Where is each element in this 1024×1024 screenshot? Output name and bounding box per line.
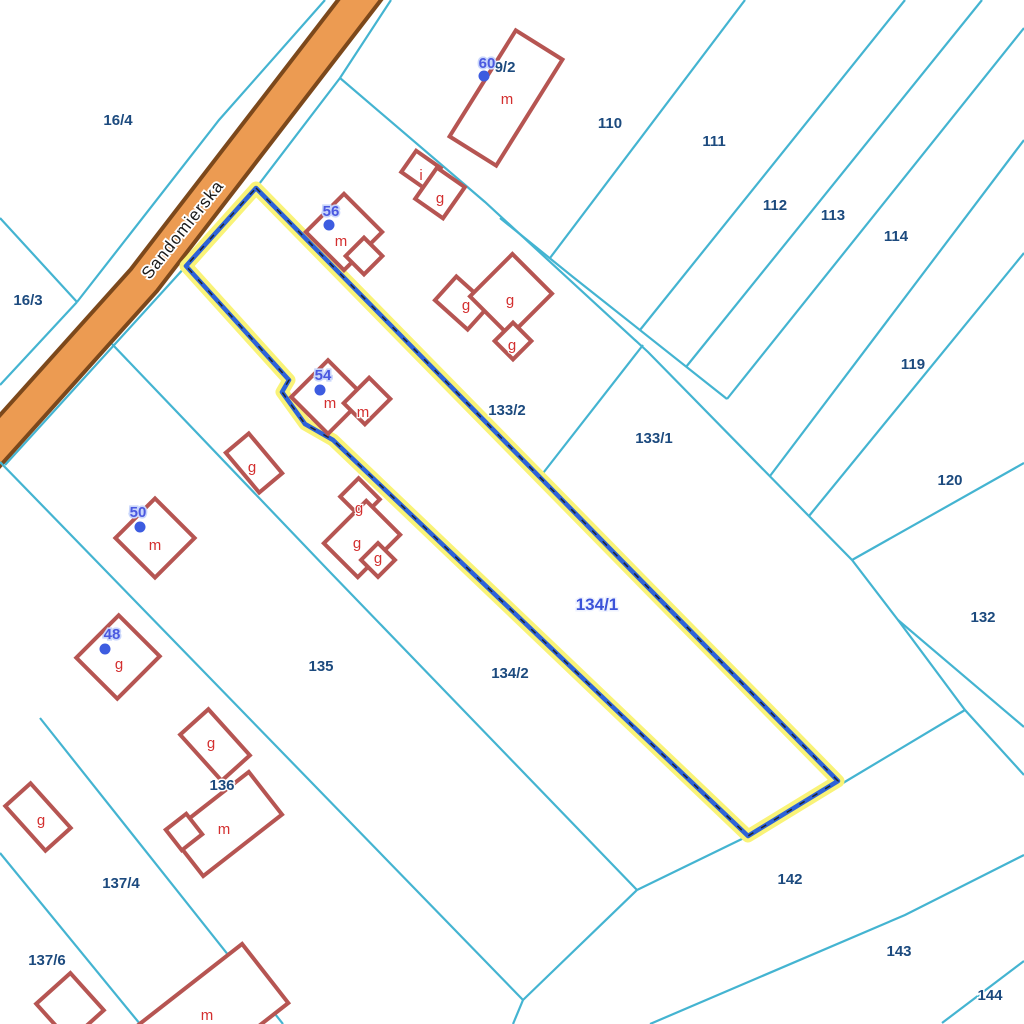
- building-type-label: g: [207, 735, 215, 752]
- building-type-label: i: [419, 167, 422, 184]
- parcel-label-113[interactable]: 113: [821, 207, 845, 224]
- building-type-label: g: [115, 656, 123, 673]
- building-type-label: g: [506, 292, 514, 309]
- building-type-label: m: [501, 91, 514, 108]
- parcel-label-119[interactable]: 119: [901, 356, 925, 373]
- building-type-label: g: [436, 190, 444, 207]
- parcel-label-133-2[interactable]: 133/2: [488, 402, 526, 419]
- building-type-label: m: [335, 233, 348, 250]
- building-type-label: g: [374, 550, 382, 567]
- parcel-label-111[interactable]: 111: [702, 133, 725, 150]
- building-type-label: m: [324, 395, 337, 412]
- address-point-dot: [135, 522, 146, 533]
- parcel-label-134-2[interactable]: 134/2: [491, 665, 529, 682]
- building-type-label: m: [201, 1007, 214, 1024]
- parcel-label-114[interactable]: 114: [884, 228, 909, 245]
- address-number-label-60[interactable]: 60: [479, 55, 496, 72]
- address-number-label-56[interactable]: 56: [323, 203, 340, 220]
- parcel-label-143[interactable]: 143: [886, 943, 911, 960]
- parcel-boundary-line: [770, 140, 1024, 476]
- building-type-label: m: [357, 404, 370, 421]
- parcel-label-137-6[interactable]: 137/6: [28, 952, 66, 969]
- building-type-label: g: [462, 297, 470, 314]
- parcel-boundary-line: [540, 345, 643, 477]
- parcel-label-144[interactable]: 144: [977, 987, 1003, 1004]
- address-point-dot: [479, 71, 490, 82]
- address-number-label-48[interactable]: 48: [104, 626, 121, 643]
- parcel-label-135[interactable]: 135: [308, 658, 333, 675]
- map-canvas[interactable]: migmgggmmggggmggmgm16/416/39/21101111121…: [0, 0, 1024, 1024]
- building-type-label: g: [37, 812, 45, 829]
- parcel-label-110[interactable]: 110: [598, 115, 622, 132]
- parcel-boundary-line: [523, 890, 637, 1000]
- building-type-label: m: [149, 537, 162, 554]
- parcel-boundary-line: [686, 0, 982, 367]
- building-type-label: g: [353, 535, 361, 552]
- parcel-boundary-line: [513, 1000, 523, 1024]
- parcel-label-134-1-selected[interactable]: 134/1: [576, 595, 619, 614]
- parcel-label-120[interactable]: 120: [937, 472, 962, 489]
- parcel-label-137-4[interactable]: 137/4: [102, 875, 140, 892]
- parcel-label-133-1[interactable]: 133/1: [635, 430, 673, 447]
- parcel-boundary-line: [898, 620, 1024, 727]
- address-number-label-54[interactable]: 54: [315, 367, 332, 384]
- parcel-label-16-4[interactable]: 16/4: [103, 112, 133, 129]
- parcel-boundary-line: [550, 0, 745, 258]
- parcel-label-112[interactable]: 112: [763, 197, 787, 214]
- building-type-label: m: [218, 821, 231, 838]
- parcel-label-132[interactable]: 132: [970, 609, 995, 626]
- building-outline: [36, 973, 104, 1024]
- parcel-boundary-line: [640, 0, 905, 330]
- parcel-boundary-line: [809, 253, 1024, 516]
- address-point-dot: [100, 644, 111, 655]
- parcel-label-142[interactable]: 142: [777, 871, 802, 888]
- building-type-label: g: [508, 337, 516, 354]
- parcel-boundary-line: [650, 855, 1024, 1024]
- building-type-label: g: [355, 500, 363, 517]
- parcel-label-16-3[interactable]: 16/3: [13, 292, 42, 309]
- parcel-label-9-2[interactable]: 9/2: [495, 59, 516, 76]
- address-number-label-50[interactable]: 50: [130, 504, 147, 521]
- parcel-label-136[interactable]: 136: [209, 777, 234, 794]
- building-type-label: g: [248, 459, 256, 476]
- address-point-dot: [315, 385, 326, 396]
- parcel-boundary-line: [0, 218, 77, 302]
- address-point-dot: [324, 220, 335, 231]
